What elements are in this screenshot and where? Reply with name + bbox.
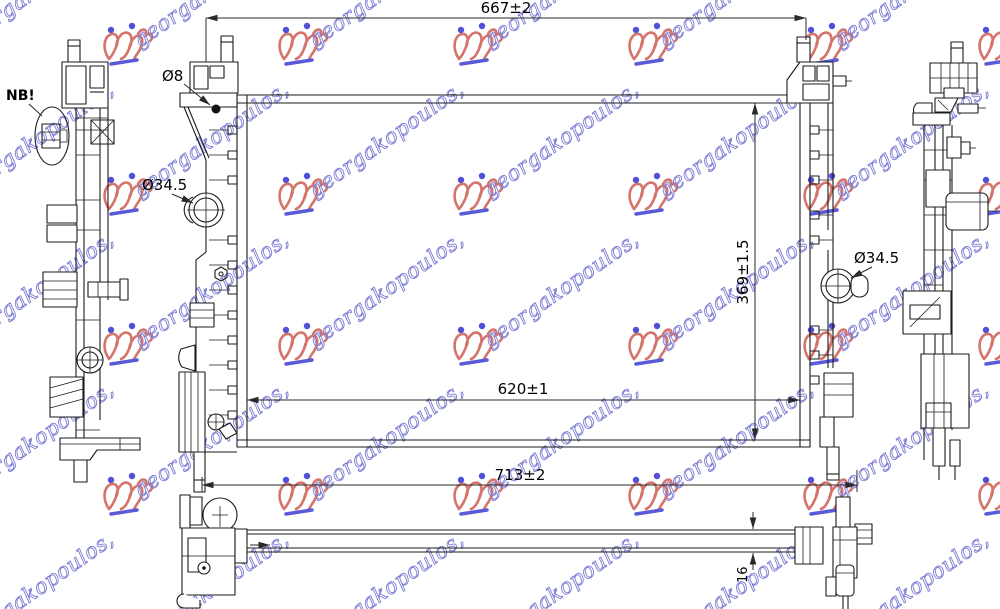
nb-note-label: NB!: [6, 88, 35, 104]
callout-right-port: Ø34.5: [851, 249, 899, 278]
bottom-left-end: [177, 495, 247, 608]
bottom-right-end: [795, 497, 872, 609]
bottom-view: [177, 495, 872, 609]
dia-8-label: Ø8: [162, 67, 183, 85]
drawing-canvas: georgakopoulos,: [0, 0, 1000, 609]
dim-369-label: 369±1.5: [734, 239, 752, 304]
mount-hole: [212, 105, 221, 114]
callout-left-port: Ø34.5: [142, 176, 193, 203]
dimension-core-width: 620±1: [247, 380, 800, 400]
dim-16-label: 16: [736, 566, 751, 583]
left-side-view: [29, 40, 140, 482]
dim-667-label: 667±2: [481, 0, 532, 17]
bottom-bar: [247, 530, 795, 552]
dia-345-right-label: Ø34.5: [854, 249, 899, 267]
dim-713-label: 713±2: [495, 466, 546, 484]
dim-620-label: 620±1: [498, 380, 549, 398]
dia-345-left-label: Ø34.5: [142, 176, 187, 194]
dimension-overall-width: 713±2: [202, 466, 857, 492]
radiator-technical-drawing: georgakopoulos,: [0, 0, 1000, 609]
